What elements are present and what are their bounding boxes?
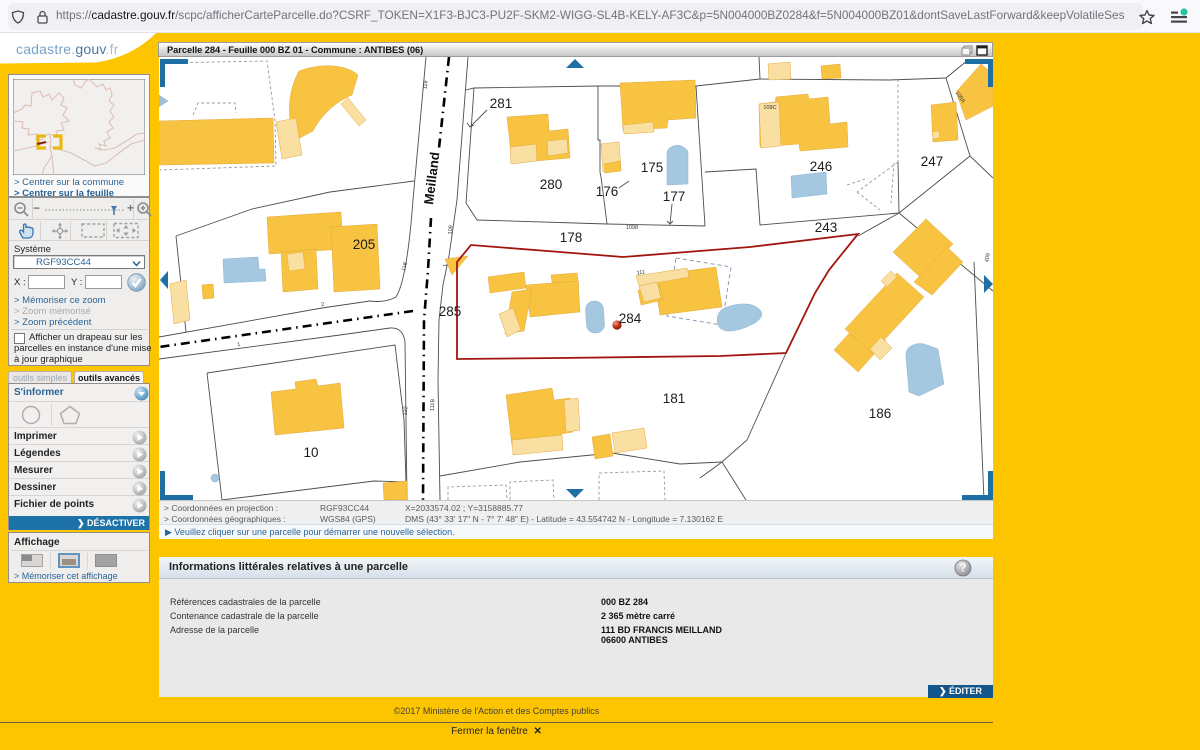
svg-text:178: 178 — [560, 230, 583, 245]
svg-text:109C: 109C — [763, 105, 776, 111]
svg-text:175: 175 — [641, 160, 664, 175]
svg-text:285: 285 — [439, 304, 462, 319]
svg-text:243: 243 — [815, 220, 838, 235]
svg-text:205: 205 — [353, 237, 376, 252]
svg-text:109: 109 — [448, 225, 455, 235]
svg-text:281: 281 — [490, 96, 513, 111]
svg-text:122: 122 — [403, 406, 410, 416]
svg-text:10: 10 — [303, 445, 318, 460]
svg-text:118: 118 — [423, 80, 430, 89]
svg-text:246: 246 — [810, 159, 833, 174]
svg-text:181: 181 — [663, 391, 686, 406]
svg-text:?: ? — [959, 563, 966, 575]
svg-text:111B: 111B — [430, 399, 436, 412]
svg-text:280: 280 — [540, 177, 563, 192]
svg-text:176: 176 — [596, 184, 619, 199]
svg-text:177: 177 — [663, 189, 686, 204]
svg-text:111: 111 — [636, 269, 645, 276]
svg-text:1098: 1098 — [626, 225, 638, 231]
svg-text:284: 284 — [619, 311, 642, 326]
svg-text:186: 186 — [869, 406, 892, 421]
svg-text:247: 247 — [921, 154, 944, 169]
